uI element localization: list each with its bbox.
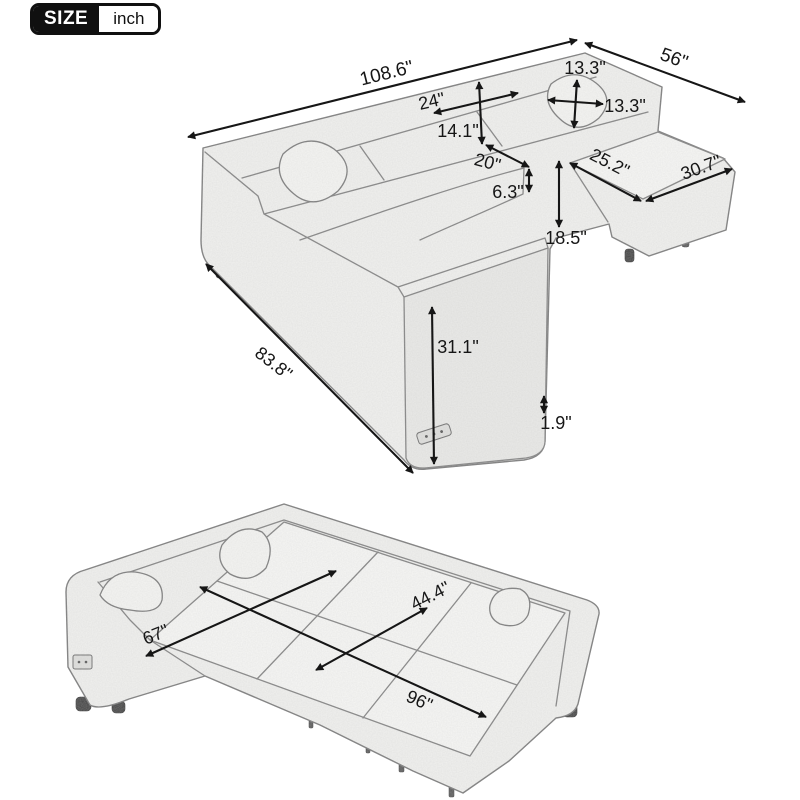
dim-label-overall-width: 108.6" [358, 57, 416, 91]
dim-label-seat-cushion-thickness: 6.3" [492, 182, 523, 202]
ottoman-leg [625, 249, 634, 262]
dim-label-seat-height: 18.5" [545, 228, 586, 248]
dim-label-leg-height: 1.9" [540, 413, 571, 433]
dim-label-back-cushion-height: 14.1" [437, 121, 478, 141]
dim-label-pillow-height: 13.3" [564, 58, 605, 78]
dimension-diagram: 108.6" 56" 13.3" 13.3" 24" 14.1" [0, 0, 800, 800]
dim-label-pillow-width: 13.3" [604, 96, 645, 116]
dim-leg-height: 1.9" [540, 396, 571, 433]
pillow [490, 588, 530, 625]
dim-label-chaise-side-depth: 56" [657, 44, 690, 73]
sleeper-sofa-illustration [66, 504, 599, 797]
assembled-sofa-illustration [201, 53, 735, 469]
usb-charging-panel [73, 655, 92, 669]
size-diagram-canvas: SIZE inch [0, 0, 800, 800]
dim-label-arm-height: 31.1" [437, 337, 478, 357]
